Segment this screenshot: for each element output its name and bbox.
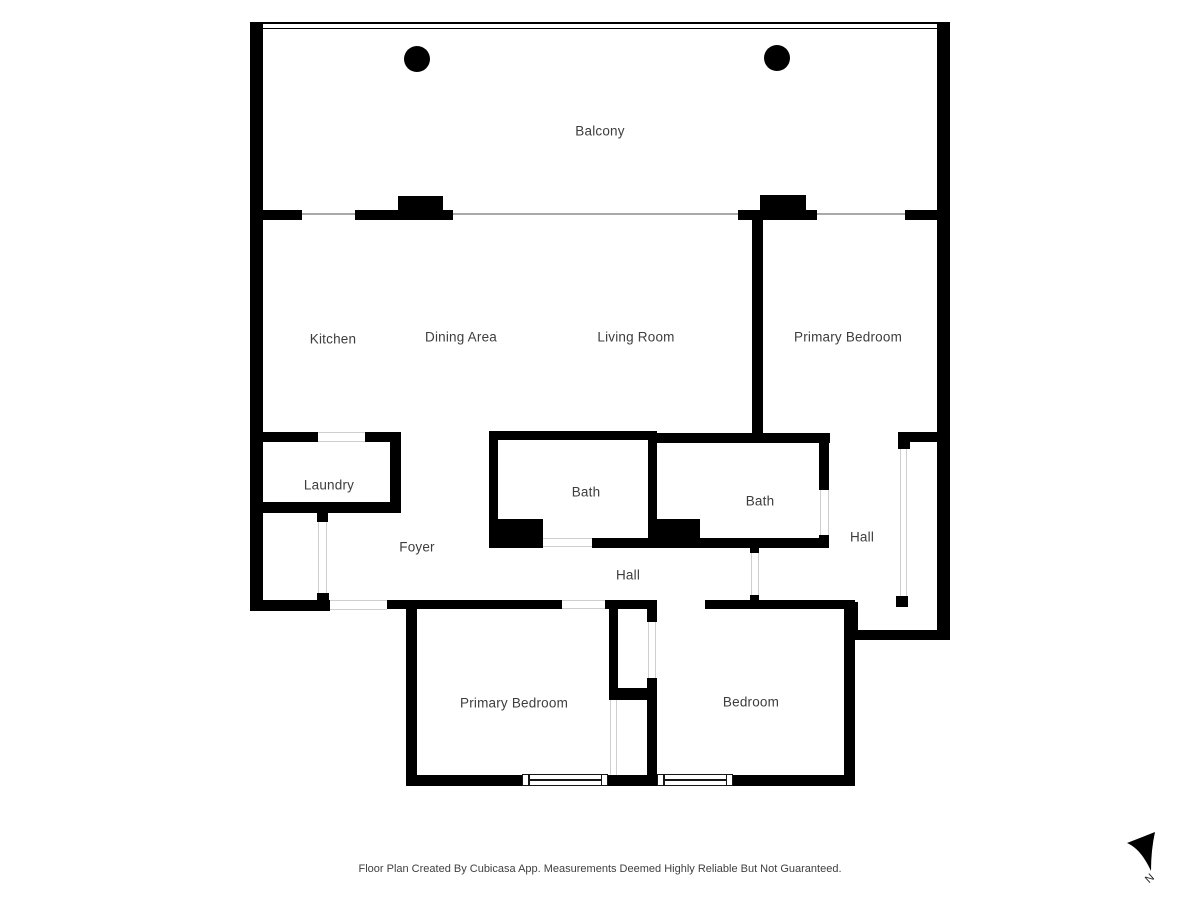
room-label-foyer: Foyer bbox=[399, 540, 435, 555]
room-label-laundry: Laundry bbox=[304, 478, 354, 493]
room-label-bedroom: Bedroom bbox=[723, 695, 779, 710]
door-opening bbox=[820, 490, 829, 537]
room-label-balcony: Balcony bbox=[575, 124, 624, 139]
room-label-dining-area: Dining Area bbox=[425, 330, 497, 345]
window-line bbox=[302, 213, 355, 215]
wall bbox=[844, 600, 855, 786]
sliding-door bbox=[398, 196, 443, 220]
door-opening bbox=[318, 432, 365, 442]
wall bbox=[937, 22, 950, 640]
wall bbox=[250, 502, 401, 513]
closet-opening bbox=[900, 449, 907, 597]
room-label-kitchen: Kitchen bbox=[310, 332, 356, 347]
wall bbox=[250, 210, 302, 220]
wall bbox=[819, 433, 829, 490]
room-label-bath-1: Bath bbox=[572, 485, 601, 500]
window-line bbox=[817, 213, 905, 215]
wall bbox=[700, 538, 829, 548]
wall bbox=[705, 600, 853, 609]
window bbox=[657, 774, 733, 786]
wall bbox=[489, 431, 656, 440]
wall bbox=[489, 519, 543, 548]
closet-opening bbox=[610, 700, 617, 775]
wall bbox=[390, 432, 401, 512]
room-label-primary-bedroom-top: Primary Bedroom bbox=[794, 330, 902, 345]
wall bbox=[896, 596, 908, 607]
room-label-hall-corridor: Hall bbox=[616, 568, 640, 583]
wall bbox=[647, 678, 657, 786]
door-opening bbox=[562, 600, 605, 609]
sliding-door bbox=[760, 195, 806, 220]
footer-disclaimer: Floor Plan Created By Cubicasa App. Meas… bbox=[358, 863, 841, 875]
wall bbox=[905, 210, 950, 220]
wall bbox=[647, 600, 657, 622]
wall bbox=[648, 519, 700, 548]
wall bbox=[752, 213, 763, 435]
wall bbox=[250, 600, 330, 611]
wall bbox=[592, 538, 656, 548]
room-label-primary-bedroom-bottom: Primary Bedroom bbox=[460, 696, 568, 711]
room-label-living-room: Living Room bbox=[597, 330, 674, 345]
north-arrow-icon: N bbox=[1116, 824, 1174, 890]
balcony-railing bbox=[252, 22, 939, 29]
door-opening bbox=[318, 522, 327, 593]
balcony-column bbox=[404, 46, 430, 72]
wall bbox=[609, 600, 618, 700]
wall bbox=[406, 775, 855, 786]
window-line bbox=[453, 213, 738, 215]
entry-door-opening bbox=[330, 600, 387, 610]
door-opening bbox=[543, 538, 592, 547]
wall bbox=[898, 432, 910, 449]
wall bbox=[406, 600, 417, 786]
floor-plan: Balcony Kitchen Dining Area Living Room … bbox=[0, 0, 1200, 900]
window bbox=[522, 774, 608, 786]
wall bbox=[250, 22, 263, 611]
wall bbox=[317, 513, 328, 522]
door-opening bbox=[751, 553, 759, 597]
wall bbox=[849, 630, 948, 640]
wall bbox=[656, 433, 830, 443]
wall bbox=[750, 543, 759, 553]
room-label-bath-2: Bath bbox=[746, 494, 775, 509]
door-opening bbox=[648, 622, 656, 678]
wall bbox=[263, 432, 318, 442]
north-label: N bbox=[1143, 872, 1157, 886]
room-label-hall-right: Hall bbox=[850, 530, 874, 545]
balcony-column bbox=[764, 45, 790, 71]
